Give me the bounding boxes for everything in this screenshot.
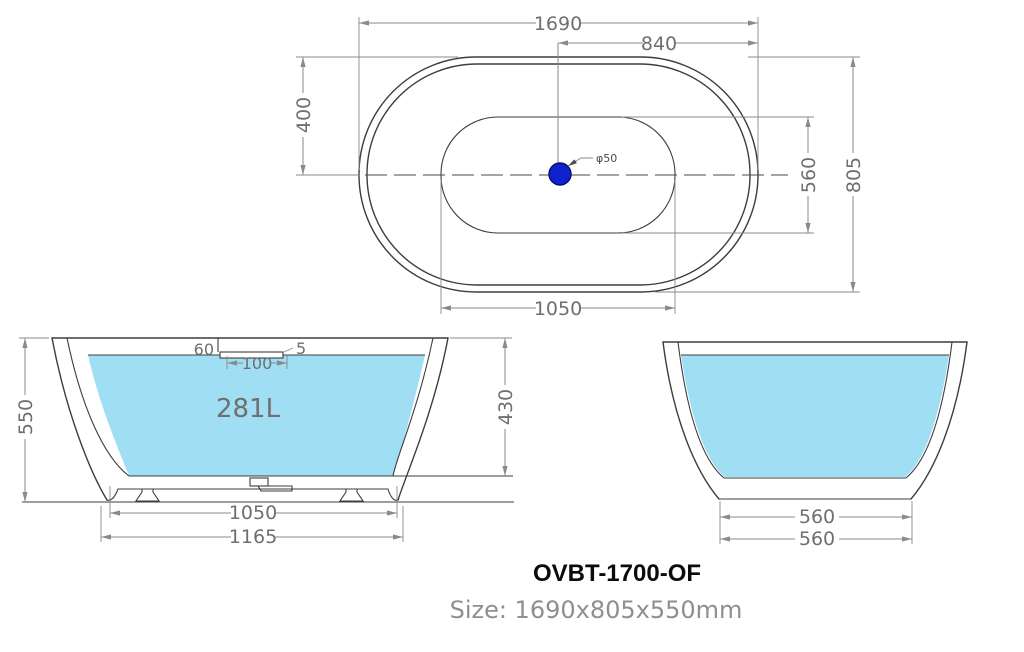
foot-left (136, 489, 159, 501)
capacity-label: 281L (216, 394, 281, 424)
waste-fitting-box (250, 478, 268, 486)
front-view: 60 5 100 281L 550 430 (15, 338, 517, 548)
side-view: 560 560 (663, 342, 967, 550)
water-body (681, 355, 949, 477)
overflow-leader (284, 348, 293, 352)
footer: OVBT-1700-OF Size: 1690x805x550mm (450, 560, 743, 624)
dim-value: 100 (242, 354, 273, 373)
dim-840: 840 (558, 33, 758, 55)
dim-overflow-offset: 60 (194, 340, 214, 359)
dim-value: 430 (495, 389, 517, 425)
dim-value: 550 (15, 399, 37, 435)
dim-value: 1165 (229, 526, 277, 548)
dim-550: 550 (15, 338, 49, 502)
foot-right (340, 489, 363, 501)
dim-value: 1050 (229, 502, 277, 524)
drain-diameter-label: φ50 (596, 152, 617, 165)
dim-value: 400 (293, 97, 315, 133)
dim-value: 560 (799, 506, 835, 528)
drain-circle (549, 163, 571, 185)
shell-bottom-line (107, 489, 398, 500)
dim-560-side-outer: 560 (720, 528, 912, 550)
technical-drawing-page: φ50 1690 840 400 560 (0, 0, 1024, 652)
dim-value: 560 (798, 157, 820, 193)
dim-overflow-thickness: 5 (296, 339, 306, 358)
dim-430: 430 (450, 338, 517, 476)
dim-value: 560 (799, 528, 835, 550)
size-label: Size: 1690x805x550mm (450, 596, 743, 624)
dim-value: 840 (641, 33, 677, 55)
dim-value: 1050 (534, 298, 582, 320)
dim-value: 1690 (534, 13, 582, 35)
bathtub-drawing: φ50 1690 840 400 560 (0, 0, 1024, 652)
model-number: OVBT-1700-OF (533, 560, 701, 587)
top-view: φ50 1690 840 400 560 (293, 13, 865, 320)
dim-value: 805 (843, 157, 865, 193)
